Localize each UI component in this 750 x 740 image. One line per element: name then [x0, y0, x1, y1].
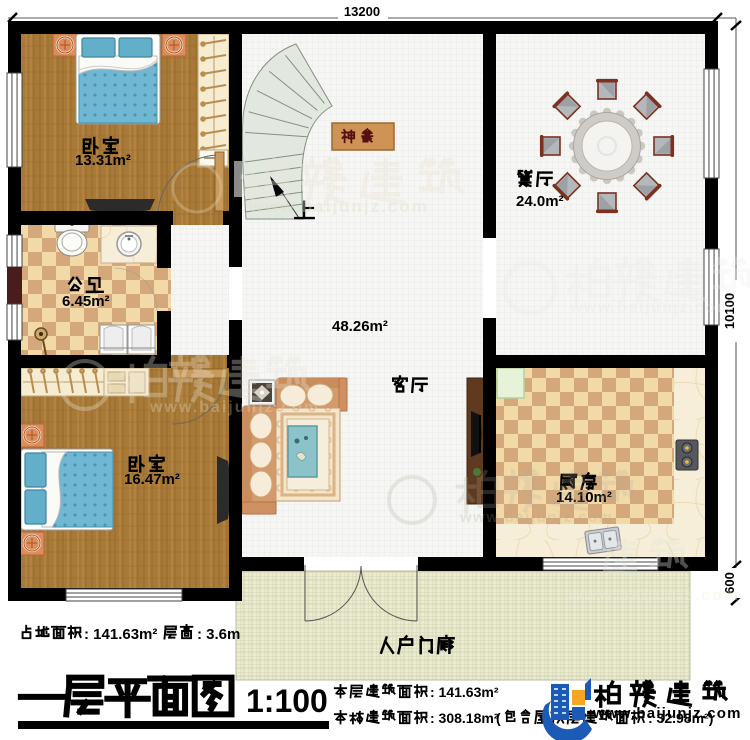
svg-text:13200: 13200: [344, 4, 380, 19]
svg-text:(: (: [496, 710, 501, 726]
svg-text:www.baijunjz.com: www.baijunjz.com: [569, 299, 732, 316]
svg-text:13.31m²: 13.31m²: [75, 152, 131, 169]
svg-text:1:100: 1:100: [246, 683, 328, 719]
svg-text:48.26m²: 48.26m²: [332, 318, 388, 335]
svg-text:: 3.6m: : 3.6m: [197, 626, 240, 643]
svg-text:www.baijunjz.com: www.baijunjz.com: [592, 705, 742, 722]
svg-text:: 308.18m²: : 308.18m²: [430, 710, 499, 726]
svg-text:www.baijunjz.com: www.baijunjz.com: [459, 509, 613, 526]
svg-text:: 141.63m²: : 141.63m²: [430, 684, 499, 700]
svg-text:www.baijunjz.com: www.baijunjz.com: [249, 197, 429, 216]
svg-text:6.45m²: 6.45m²: [62, 293, 110, 310]
svg-text:www.baijunjz.com: www.baijunjz.com: [149, 399, 320, 416]
svg-text:24.0m²: 24.0m²: [516, 193, 564, 210]
svg-text:: 141.63m²: : 141.63m²: [84, 626, 157, 643]
svg-text:16.47m²: 16.47m²: [124, 471, 180, 488]
svg-text:www.baijunjz.com: www.baijunjz.com: [569, 587, 740, 604]
